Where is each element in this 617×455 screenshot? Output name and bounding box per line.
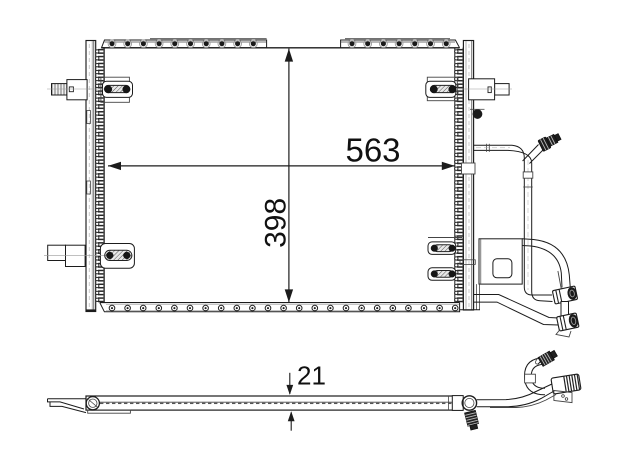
svg-text:21: 21: [297, 361, 326, 391]
svg-text:398: 398: [259, 198, 292, 248]
svg-text:563: 563: [345, 131, 400, 168]
